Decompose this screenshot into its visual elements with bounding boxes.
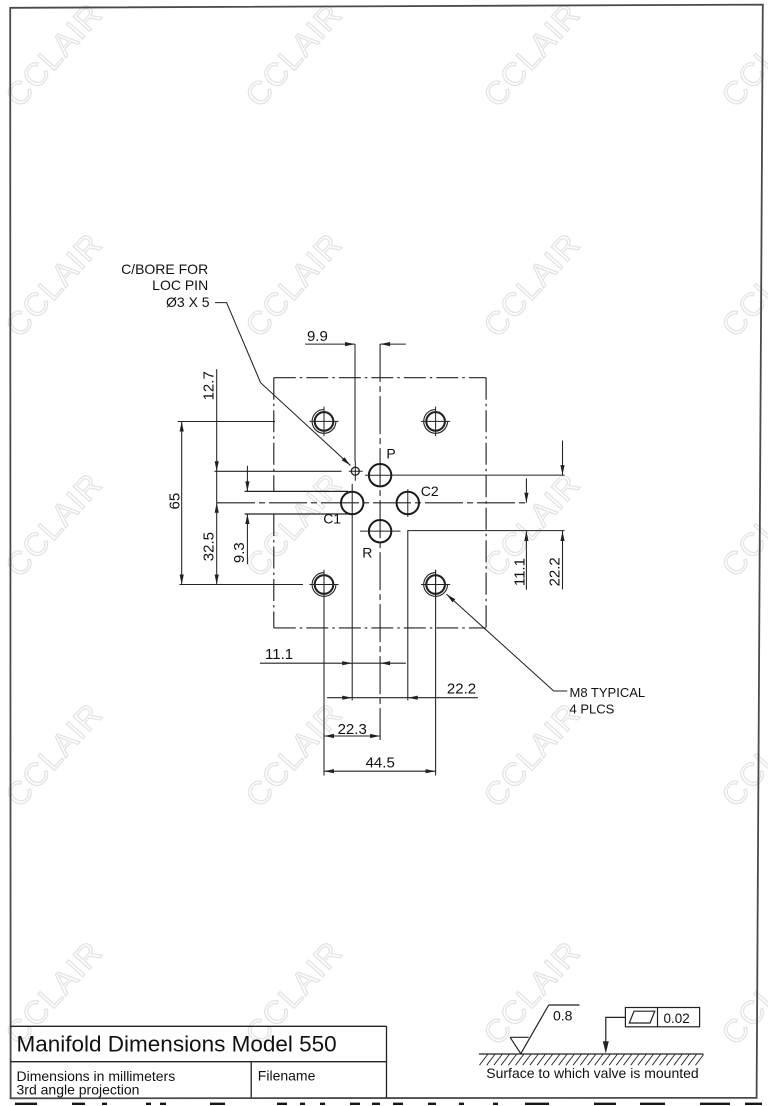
svg-text:CCLAIR: CCLAIR [714, 934, 768, 1052]
svg-text:R: R [362, 545, 372, 561]
svg-text:CCLAIR: CCLAIR [476, 0, 587, 114]
svg-text:LOC PIN: LOC PIN [152, 277, 208, 293]
svg-text:Surface to which valve is moun: Surface to which valve is mounted [486, 1065, 698, 1081]
svg-text:Ø3 X 5: Ø3 X 5 [166, 294, 210, 310]
svg-text:22.3: 22.3 [338, 721, 367, 738]
svg-text:44.5: 44.5 [366, 755, 395, 772]
svg-text:CCLAIR: CCLAIR [714, 696, 768, 814]
svg-text:0.8: 0.8 [553, 1007, 573, 1023]
svg-text:11.1: 11.1 [511, 558, 528, 586]
svg-text:P: P [386, 445, 395, 461]
svg-text:CCLAIR: CCLAIR [0, 226, 109, 344]
svg-text:11.1: 11.1 [265, 646, 293, 663]
svg-text:9.9: 9.9 [307, 328, 328, 345]
svg-text:9.3: 9.3 [231, 542, 248, 563]
svg-text:22.2: 22.2 [547, 557, 564, 586]
svg-text:32.5: 32.5 [201, 532, 218, 561]
svg-text:Manifold Dimensions Model 550: Manifold Dimensions Model 550 [17, 1032, 337, 1057]
svg-text:12.7: 12.7 [201, 371, 218, 400]
svg-text:CCLAIR: CCLAIR [476, 226, 587, 344]
svg-text:CCLAIR: CCLAIR [714, 226, 768, 344]
svg-text:0.02: 0.02 [664, 1011, 690, 1026]
svg-text:CCLAIR: CCLAIR [238, 0, 349, 114]
svg-text:Filename: Filename [258, 1068, 316, 1084]
svg-text:22.2: 22.2 [447, 681, 476, 698]
svg-text:C/BORE FOR: C/BORE FOR [121, 261, 208, 277]
svg-text:3rd angle projection: 3rd angle projection [17, 1081, 140, 1097]
svg-text:C2: C2 [421, 483, 439, 499]
svg-text:CCLAIR: CCLAIR [238, 226, 349, 344]
svg-text:CCLAIR: CCLAIR [0, 696, 109, 814]
svg-text:CCLAIR: CCLAIR [714, 0, 768, 114]
svg-text:65: 65 [167, 493, 184, 510]
svg-text:CCLAIR: CCLAIR [0, 466, 109, 584]
svg-text:CCLAIR: CCLAIR [476, 466, 587, 584]
svg-text:CCLAIR: CCLAIR [238, 696, 349, 814]
svg-text:CCLAIR: CCLAIR [0, 0, 109, 114]
svg-text:4 PLCS: 4 PLCS [570, 702, 615, 717]
svg-text:C1: C1 [323, 510, 341, 526]
svg-text:M8 TYPICAL: M8 TYPICAL [570, 685, 646, 700]
